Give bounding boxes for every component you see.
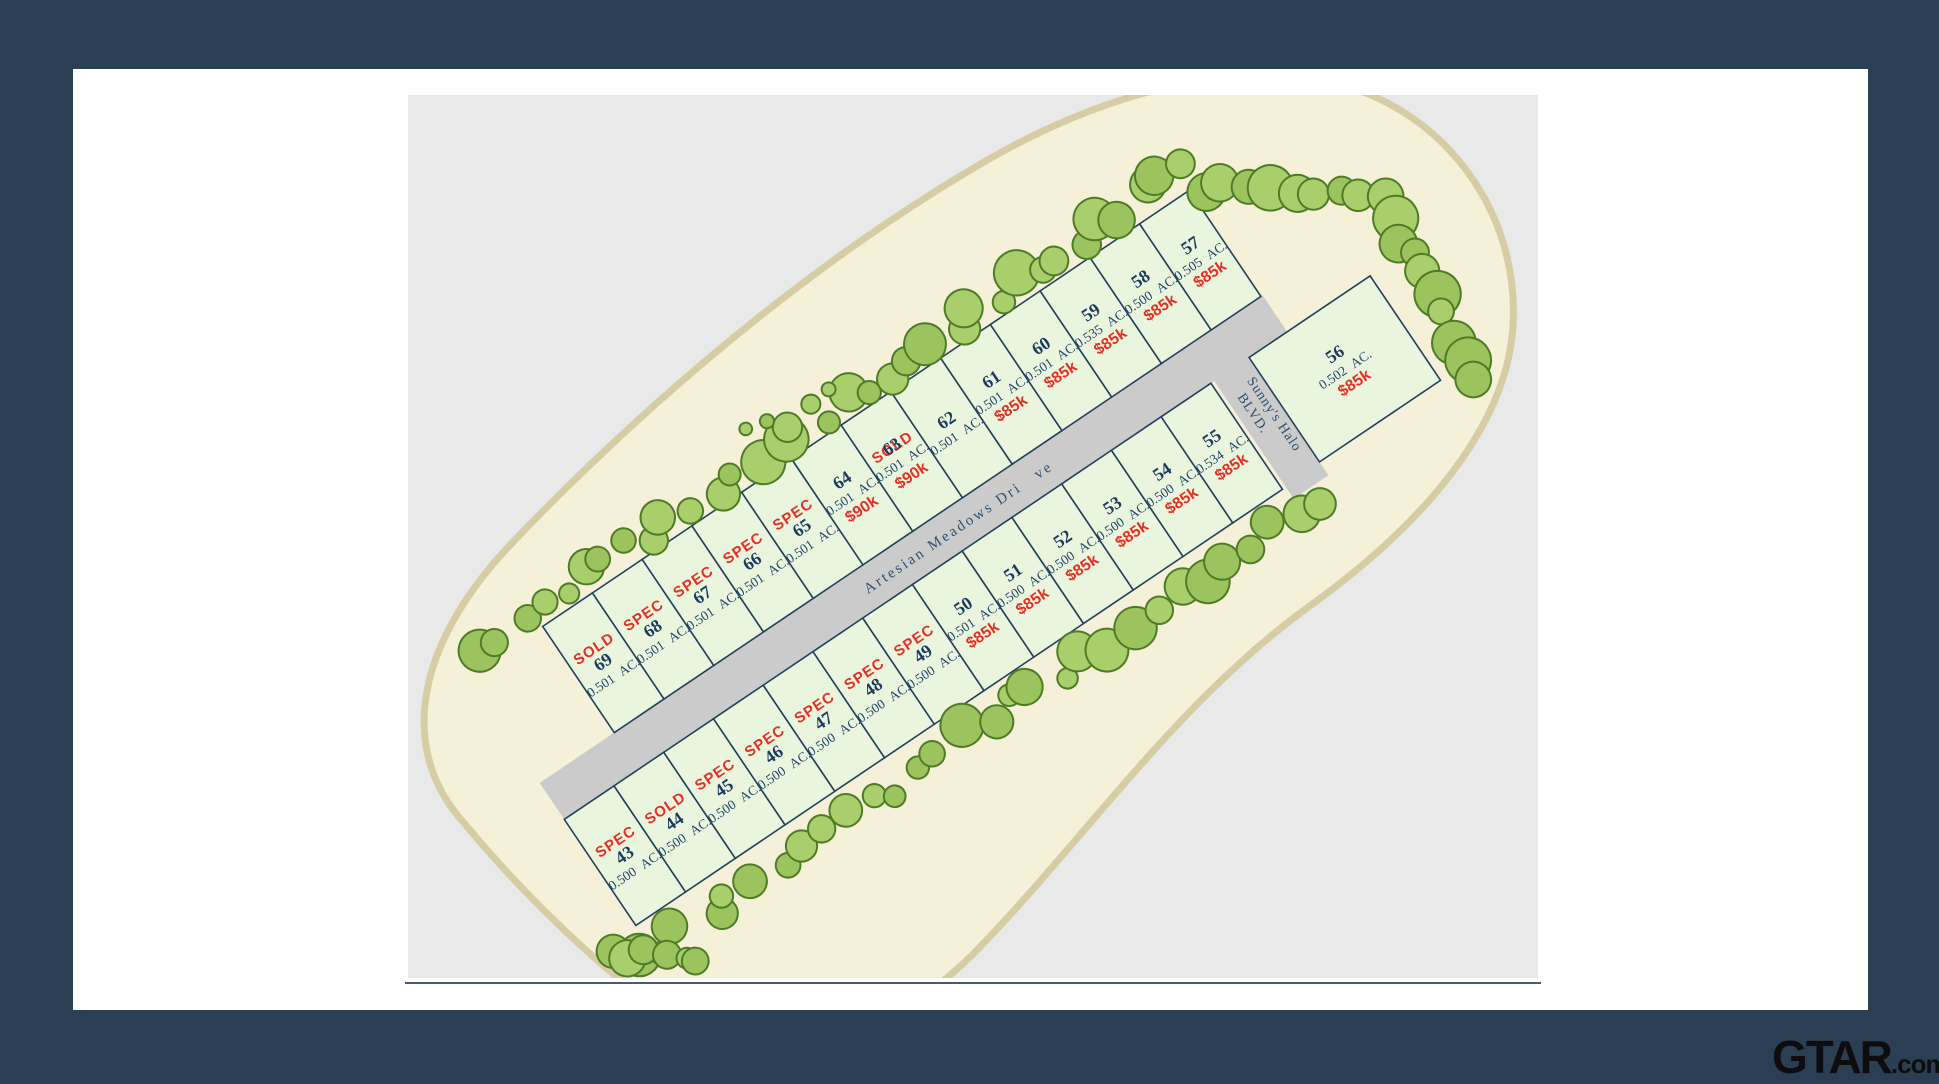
map-underline xyxy=(405,982,1541,984)
screenshot-root: { "page": { "frame_color": "#2b3f54", "c… xyxy=(0,0,1939,1077)
plat-map: SOLD690.501 AC.SPEC680.501 AC.SPEC670.50… xyxy=(408,95,1538,978)
watermark-brand: GTAR xyxy=(1772,1031,1891,1083)
watermark-suffix: .com xyxy=(1891,1049,1939,1079)
watermark-gtar: GTAR.com xyxy=(1772,1030,1939,1084)
